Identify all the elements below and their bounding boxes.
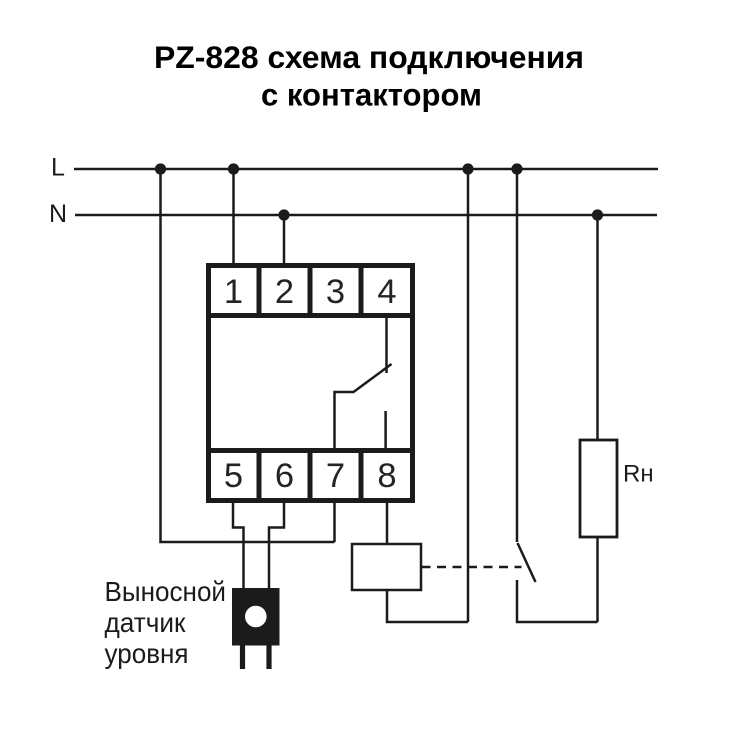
svg-text:датчик: датчик (105, 607, 187, 638)
svg-text:N: N (49, 200, 67, 228)
svg-text:2: 2 (275, 273, 294, 311)
svg-text:7: 7 (326, 457, 345, 495)
svg-text:L: L (51, 154, 65, 182)
svg-text:4: 4 (377, 273, 396, 311)
svg-text:1: 1 (224, 273, 243, 311)
svg-text:Выносной: Выносной (105, 576, 227, 607)
svg-text:с контактором: с контактором (261, 77, 482, 113)
svg-text:8: 8 (377, 457, 396, 495)
svg-text:PZ-828 схема подключения: PZ-828 схема подключения (154, 39, 584, 75)
svg-text:уровня: уровня (105, 638, 189, 669)
svg-text:Rн: Rн (623, 461, 654, 488)
svg-text:5: 5 (224, 457, 243, 495)
svg-text:3: 3 (326, 273, 345, 311)
svg-text:6: 6 (275, 457, 294, 495)
